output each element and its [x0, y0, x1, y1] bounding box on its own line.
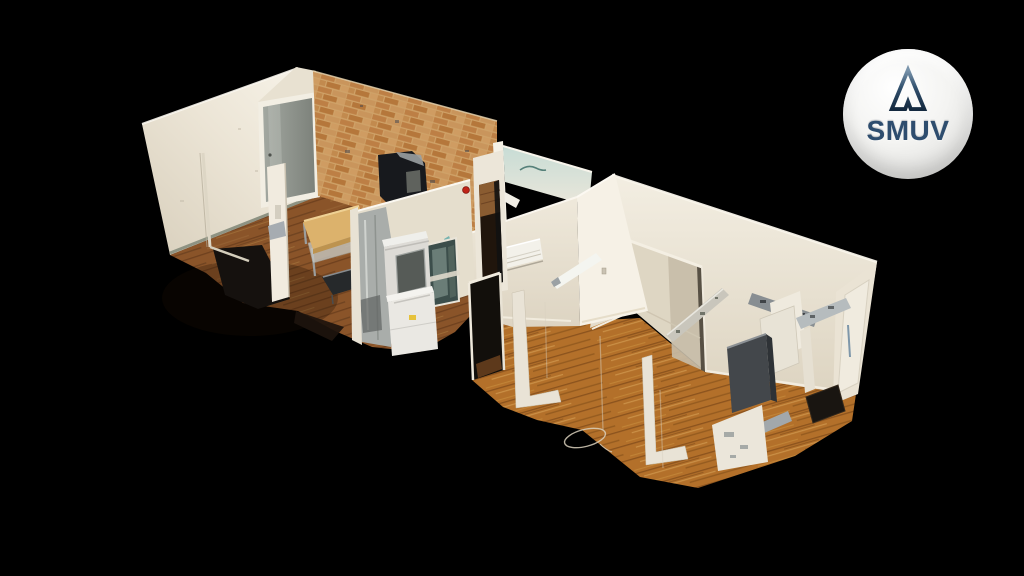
- fire-alarm: [463, 187, 470, 194]
- door-knob: [268, 153, 271, 156]
- wall-outlet: [602, 268, 606, 274]
- yellow-label: [409, 315, 416, 320]
- closet-doorway: [469, 273, 504, 380]
- hall-door-frame: [473, 150, 508, 296]
- viewer-canvas: SMUV: [0, 0, 1024, 576]
- smuv-brand-text: SMUV: [867, 117, 950, 145]
- smuv-logo-badge: SMUV: [843, 49, 973, 179]
- triangle-delta-logo-icon: [880, 64, 936, 116]
- washer: [388, 292, 438, 356]
- dryer-door: [396, 249, 426, 294]
